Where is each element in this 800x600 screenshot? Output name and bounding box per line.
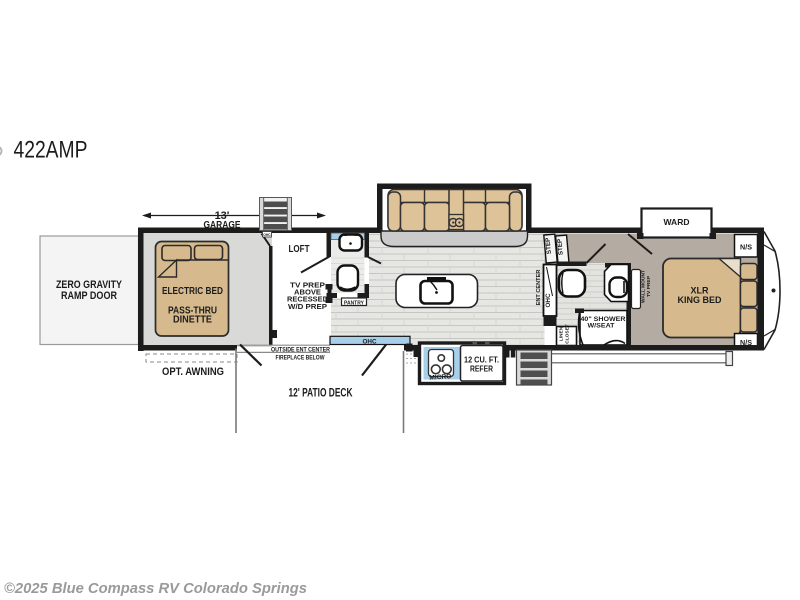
svg-text:WARD: WARD — [664, 218, 690, 227]
svg-text:OHC: OHC — [363, 338, 377, 345]
svg-text:OUTSIDE ENT CENTER: OUTSIDE ENT CENTER — [271, 347, 330, 354]
svg-text:12 CU. FT.: 12 CU. FT. — [464, 356, 499, 365]
svg-text:12' PATIO DECK: 12' PATIO DECK — [289, 388, 354, 400]
svg-text:OHC: OHC — [263, 233, 271, 237]
svg-text:TV PREP: TV PREP — [646, 275, 652, 297]
svg-text:PANTRY: PANTRY — [344, 300, 364, 306]
svg-text:RAMP DOOR: RAMP DOOR — [61, 290, 117, 302]
svg-text:STEP: STEP — [556, 238, 564, 255]
svg-text:STEP: STEP — [545, 237, 553, 254]
svg-text:N/S: N/S — [740, 243, 752, 252]
svg-text:LINEN: LINEN — [559, 326, 565, 341]
svg-text:WALL MOUNT: WALL MOUNT — [641, 270, 647, 303]
svg-text:W/D PREP: W/D PREP — [288, 302, 327, 311]
svg-text:OPT. AWNING: OPT. AWNING — [162, 366, 224, 378]
svg-text:40" SHOWER: 40" SHOWER — [581, 317, 627, 323]
svg-text:DINETTE: DINETTE — [173, 315, 212, 326]
svg-text:©2025 Blue Compass RV Colorado: ©2025 Blue Compass RV Colorado Springs — [4, 581, 307, 597]
svg-text:422AMP: 422AMP — [14, 137, 88, 164]
svg-text:XLR: XLR — [691, 286, 710, 296]
svg-text:FIREPLACE BELOW: FIREPLACE BELOW — [276, 354, 325, 361]
svg-text:W/SEAT: W/SEAT — [588, 324, 615, 330]
svg-text:ENT CENTER: ENT CENTER — [536, 270, 542, 306]
svg-text:CLOSET: CLOSET — [565, 324, 571, 344]
svg-text:REFER: REFER — [470, 365, 493, 374]
svg-text:OHC: OHC — [545, 293, 552, 307]
svg-text:KING BED: KING BED — [678, 295, 722, 305]
svg-text:ELECTRIC BED: ELECTRIC BED — [162, 286, 223, 297]
svg-text:LOFT: LOFT — [289, 244, 310, 255]
